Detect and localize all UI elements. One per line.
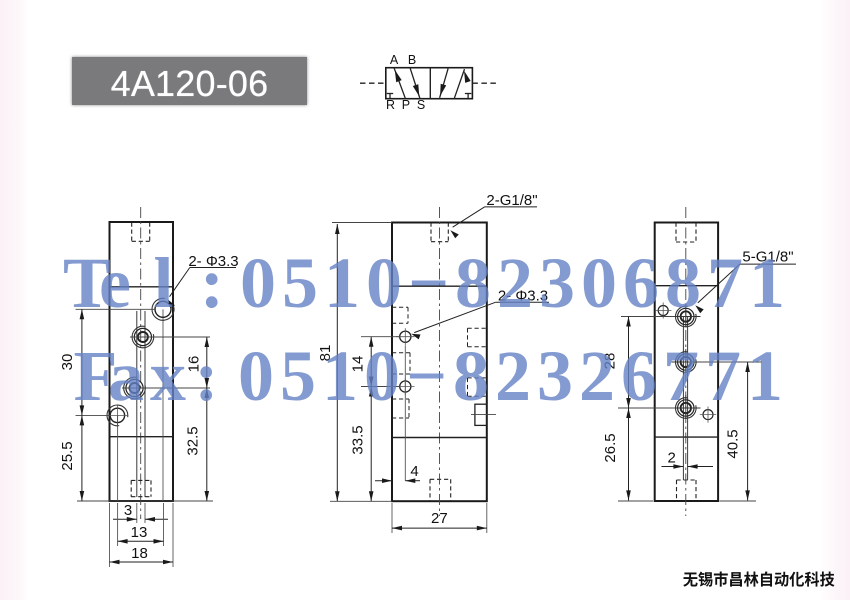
- svg-text:4: 4: [410, 463, 418, 480]
- svg-text:S: S: [417, 98, 425, 112]
- svg-text:25.5: 25.5: [59, 441, 76, 470]
- svg-text:40.5: 40.5: [725, 429, 742, 458]
- svg-text:A: A: [390, 53, 399, 67]
- svg-text:27: 27: [431, 510, 448, 527]
- svg-text:18: 18: [131, 545, 148, 562]
- svg-text:33.5: 33.5: [350, 425, 367, 454]
- svg-text:32.5: 32.5: [185, 426, 202, 455]
- svg-text:2: 2: [668, 450, 676, 467]
- svg-text:B: B: [408, 53, 416, 67]
- svg-text:13: 13: [131, 524, 148, 541]
- svg-text:26.5: 26.5: [602, 433, 619, 462]
- svg-text:P: P: [402, 98, 410, 112]
- svg-text:3: 3: [124, 502, 132, 519]
- svg-text:R: R: [386, 98, 395, 112]
